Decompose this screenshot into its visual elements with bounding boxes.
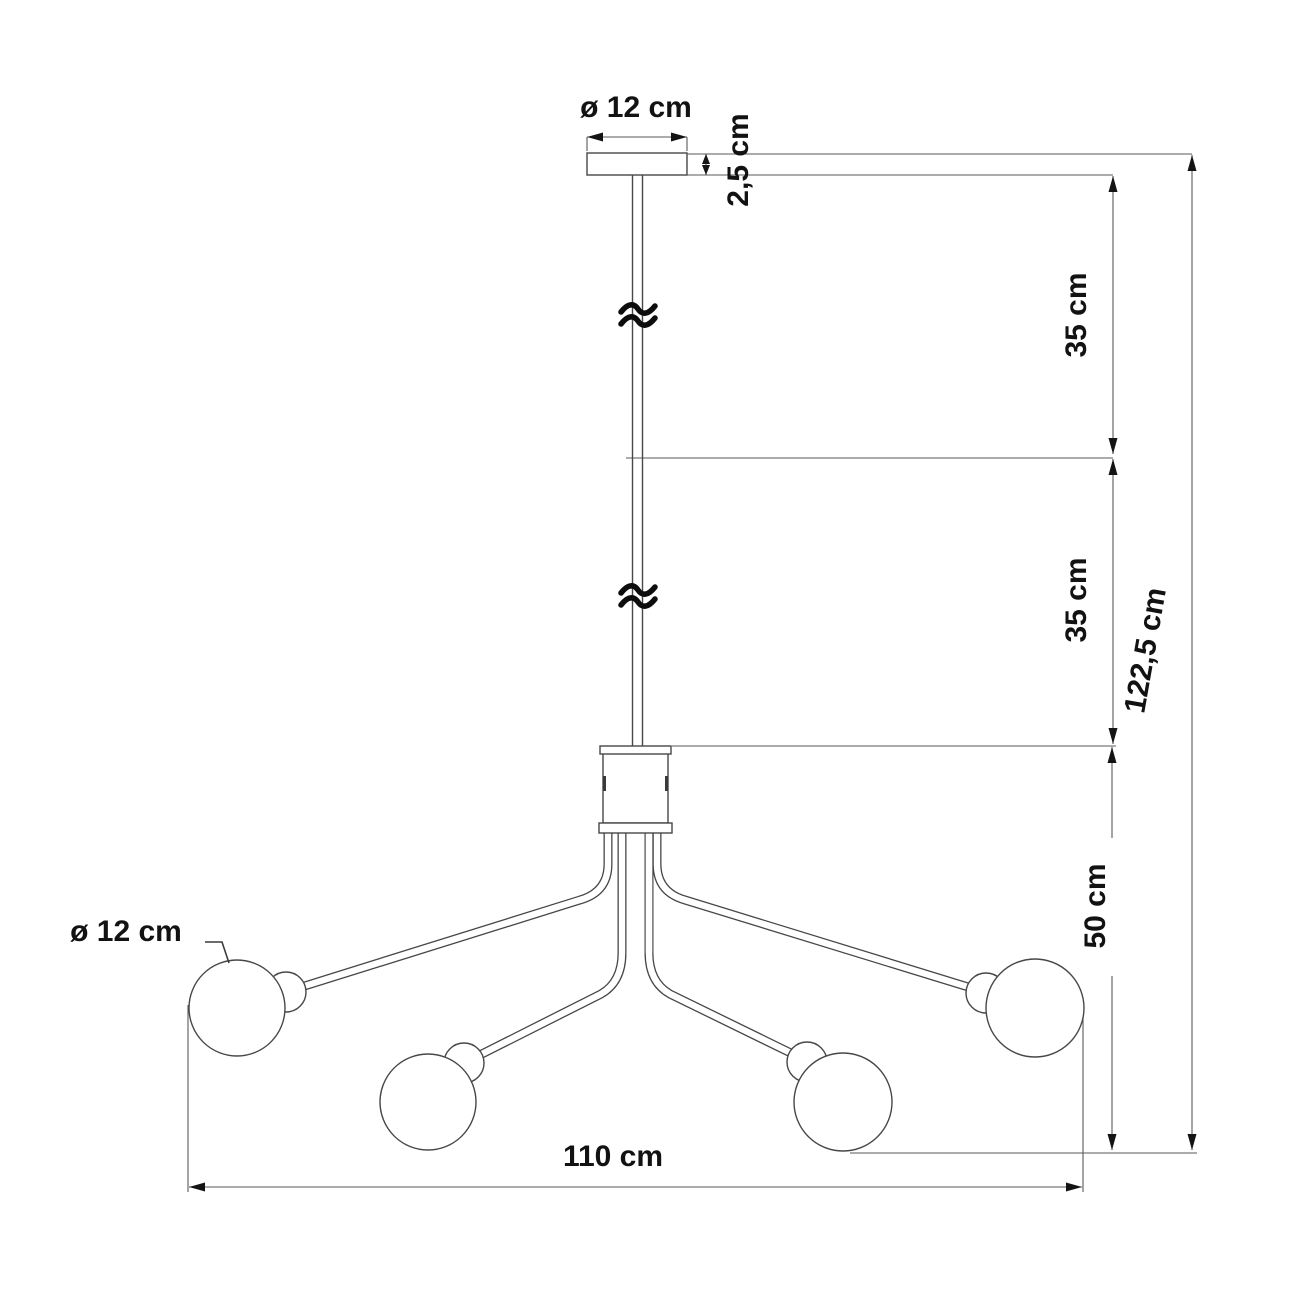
globe-lower-left [380,1043,484,1150]
arrow-up-icon [1109,459,1118,475]
arm-upper-left [295,833,608,989]
arrow-down-icon [1109,728,1118,744]
upper-rod-dimension: 35 cm [1060,176,1118,454]
technical-drawing-page: ø 12 cm 2,5 cm 35 cm 35 cm 50 cm 122,5 c [0,0,1300,1300]
arms [295,833,978,1060]
arrow-down-icon [702,165,710,175]
rod-break-symbol-upper [621,305,655,325]
globe-diameter-label: ø 12 cm [70,915,182,948]
hub-top-rim [600,746,671,754]
arrow-right-icon [1066,1183,1082,1192]
arrow-up-icon [1109,176,1118,192]
arrow-up-icon [702,154,710,164]
overall-height-dimension: 122,5 cm [1118,155,1196,1150]
bulb-right [986,959,1084,1057]
arrow-left-icon [587,133,603,142]
hub [599,746,672,833]
arrow-up-icon [1108,747,1117,763]
arm-lower-right [649,833,801,1058]
globe-lower-right [787,1042,892,1151]
arrow-right-icon [671,133,687,142]
hub-body [603,753,668,823]
canopy-thickness-dimension: 2,5 cm [687,113,755,206]
arm-drop-label: 50 cm [1079,863,1112,948]
bulb-lower-left [380,1054,476,1150]
globes [189,959,1084,1151]
suspension-rod [633,175,643,746]
globe-left [189,960,306,1056]
arm-upper-right [657,833,978,990]
arrow-down-icon [1188,1134,1197,1150]
arrow-up-icon [1188,155,1197,171]
canopy-diameter-dimension: ø 12 cm [580,91,692,151]
globe-right [966,959,1084,1057]
lower-rod-label: 35 cm [1060,557,1093,642]
arm-lower-left [470,833,622,1060]
canopy-diameter-label: ø 12 cm [580,91,692,124]
overall-width-dimension: 110 cm [189,1140,1082,1192]
arrow-down-icon [1109,438,1118,454]
bulb-lower-right [794,1053,892,1151]
hub-bottom-rim [599,823,672,833]
lower-rod-dimension: 35 cm [1060,459,1118,744]
arm-drop-dimension: 50 cm [1079,747,1117,1150]
overall-height-label: 122,5 cm [1118,585,1173,716]
globe-diameter-callout: ø 12 cm [70,915,229,963]
canopy-thickness-label: 2,5 cm [722,113,755,206]
overall-width-label: 110 cm [563,1140,663,1173]
chandelier-dimension-diagram: ø 12 cm 2,5 cm 35 cm 35 cm 50 cm 122,5 c [0,0,1300,1300]
canopy-body [587,153,687,175]
rod-break-symbol-lower [621,586,655,606]
arrow-left-icon [189,1183,205,1192]
ceiling-canopy [587,153,687,175]
bulb-left [189,960,285,1056]
leader-line [205,942,229,963]
upper-rod-label: 35 cm [1060,272,1093,357]
arrow-down-icon [1108,1134,1117,1150]
